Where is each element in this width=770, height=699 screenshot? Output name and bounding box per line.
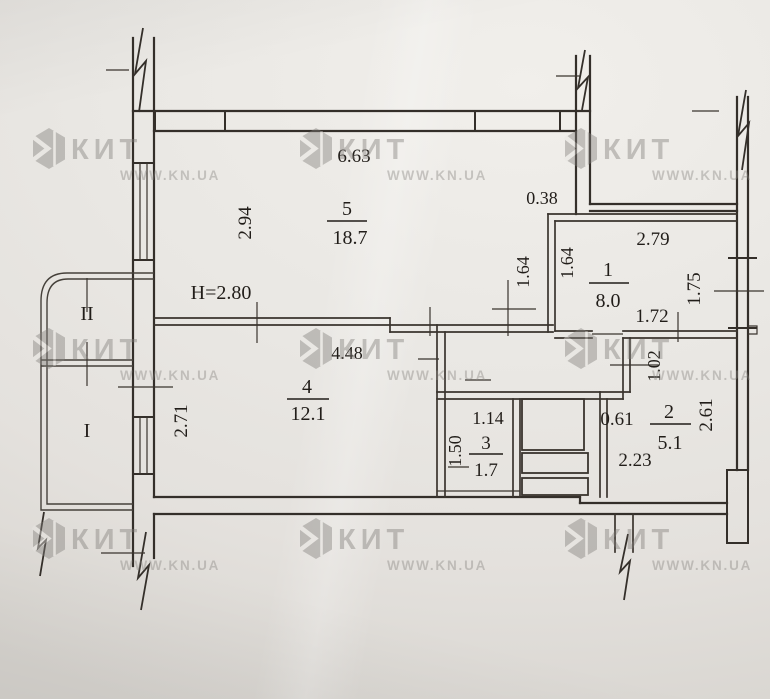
watermark-brand-text: КИТ	[338, 334, 409, 366]
watermark-brand-text: КИТ	[603, 524, 674, 556]
watermark-url-text: WWW.KN.UA	[120, 168, 220, 183]
ceiling-height-label: H=2.80	[191, 282, 252, 304]
watermark-brand-text: КИТ	[603, 334, 674, 366]
kit-watermark: КИТ WWW.KN.UA	[300, 328, 487, 383]
watermark-url-text: WWW.KN.UA	[652, 368, 752, 383]
room4-number-label: 4	[302, 376, 312, 398]
kit-watermark: КИТ WWW.KN.UA	[565, 328, 752, 383]
watermark-brand-text: КИТ	[71, 334, 142, 366]
room5-number-label: 5	[342, 198, 352, 220]
watermark-brand-text: КИТ	[71, 134, 142, 166]
room3-number-label: 3	[481, 433, 491, 454]
loggia-windows	[133, 163, 154, 474]
watermark-brand-text: КИТ	[338, 134, 409, 166]
kit-watermark: КИТ WWW.KN.UA	[33, 518, 220, 573]
room2-width-label: 2.23	[618, 450, 651, 471]
kit-watermark: КИТ WWW.KN.UA	[33, 128, 220, 183]
loggia-upper-label: II	[80, 303, 93, 325]
scanned-floorplan-photo: 6.63 5 18.7 2.94 H=2.80 0.38 1.64 1.64 2…	[0, 0, 770, 699]
ventilation-shafts	[522, 399, 588, 495]
room1-window-label: 1.75	[684, 272, 705, 305]
watermark-brand-text: КИТ	[338, 524, 409, 556]
watermark-brand-text: КИТ	[71, 524, 142, 556]
watermark-url-text: WWW.KN.UA	[120, 558, 220, 573]
room3-width-label: 1.14	[472, 408, 504, 428]
room5-rightwall-label: 1.64	[513, 256, 533, 288]
room2-depth-label: 2.61	[696, 398, 717, 431]
top-wall-pier-left	[155, 111, 225, 131]
room5-area-label: 18.7	[333, 227, 368, 249]
room1-bottomwall-label: 1.72	[635, 306, 668, 327]
top-wall-pier-right	[475, 111, 560, 131]
kit-watermark: КИТ WWW.KN.UA	[565, 128, 752, 183]
watermark-url-text: WWW.KN.UA	[387, 368, 487, 383]
watermarks: КИТ WWW.KN.UA КИТ WWW.KN.UA КИТ WWW.KN.U…	[33, 128, 752, 573]
kit-watermark: КИТ WWW.KN.UA	[300, 128, 487, 183]
plan-labels: 6.63 5 18.7 2.94 H=2.80 0.38 1.64 1.64 2…	[80, 146, 717, 481]
room3-area-label: 1.7	[474, 460, 498, 481]
watermark-url-text: WWW.KN.UA	[387, 558, 487, 573]
floorplan-drawing: 6.63 5 18.7 2.94 H=2.80 0.38 1.64 1.64 2…	[0, 0, 770, 699]
watermark-url-text: WWW.KN.UA	[387, 168, 487, 183]
watermark-url-text: WWW.KN.UA	[652, 168, 752, 183]
room4-depth-label: 2.71	[171, 404, 192, 437]
room1-number-label: 1	[603, 259, 613, 281]
room3-depth-label: 1.50	[445, 435, 465, 467]
room2-niche-label: 0.61	[600, 409, 633, 430]
watermark-url-text: WWW.KN.UA	[120, 368, 220, 383]
room5-depth-label: 2.94	[235, 206, 256, 240]
corner-pillar	[727, 470, 748, 543]
room1-leftwall-label: 1.64	[557, 247, 577, 279]
loggia-lower-label: I	[84, 420, 91, 442]
watermark-brand-text: КИТ	[603, 134, 674, 166]
room2-area-label: 5.1	[658, 432, 683, 454]
kit-watermark: КИТ WWW.KN.UA	[565, 518, 752, 573]
room2-number-label: 2	[664, 401, 674, 423]
kit-watermark: КИТ WWW.KN.UA	[33, 328, 220, 383]
room1-area-label: 8.0	[596, 290, 621, 312]
room4-area-label: 12.1	[291, 403, 326, 425]
watermark-url-text: WWW.KN.UA	[652, 558, 752, 573]
room1-width-label: 2.79	[636, 229, 669, 250]
kit-watermark: КИТ WWW.KN.UA	[300, 518, 487, 573]
wall-step-label: 0.38	[526, 188, 558, 208]
